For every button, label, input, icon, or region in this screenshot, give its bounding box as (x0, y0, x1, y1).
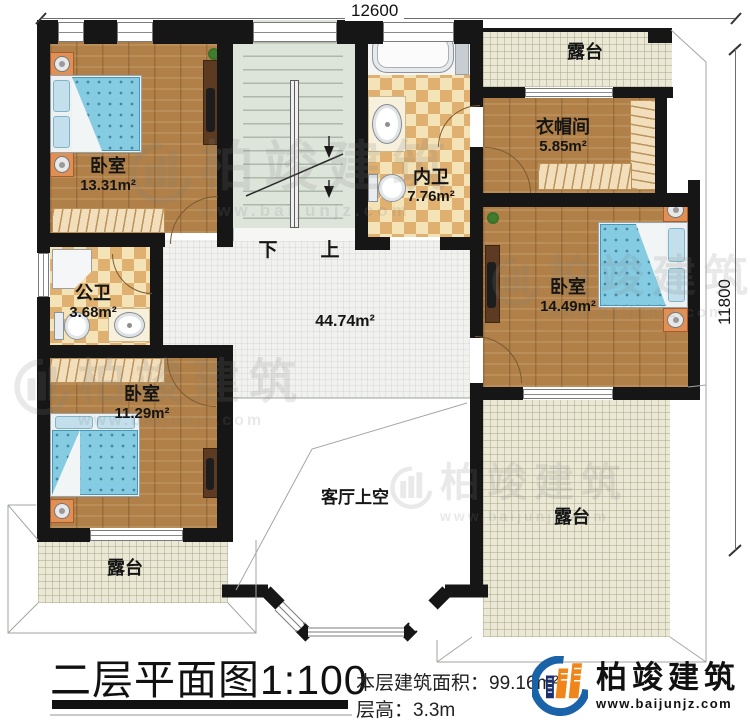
room-label-bedroom-top-left: 卧室 13.31m² (58, 156, 158, 195)
wardrobe (538, 163, 632, 190)
lamp-icon (54, 56, 70, 72)
nightstand (50, 52, 74, 76)
nightstand (50, 499, 74, 523)
wall (470, 250, 483, 338)
room-area: 44.74m² (315, 313, 375, 330)
hall-area-label: 44.74m² (300, 313, 390, 332)
room-area: 5.85m² (517, 138, 609, 156)
dimension-line-right (735, 49, 736, 550)
wardrobe (52, 208, 165, 233)
floor-area-label: 本层建筑面积： (356, 673, 489, 694)
wall (483, 193, 700, 207)
wall (217, 20, 233, 247)
dimension-right-value: 11800 (715, 265, 735, 339)
room-name: 卧室 (94, 384, 190, 405)
room-label-terrace-bottom-left: 露台 (100, 558, 150, 579)
toilet-tank-icon (368, 174, 378, 202)
bed-sheet-fold (636, 224, 666, 306)
room-label-bedroom-bottom-left: 卧室 11.29m² (94, 384, 190, 423)
wall (440, 237, 482, 250)
wall (613, 387, 688, 400)
pillow (53, 80, 70, 112)
stair-down-label: 下 (256, 240, 280, 262)
wall (355, 20, 368, 250)
company-logo-icon (532, 656, 588, 716)
monitor-icon (206, 458, 214, 490)
wall (37, 528, 90, 542)
window (90, 530, 183, 541)
wall (470, 400, 483, 592)
room-label-living-void: 客厅上空 (312, 488, 398, 508)
room-label-bedroom-right: 卧室 14.49m² (520, 277, 616, 316)
plant-icon (487, 212, 499, 224)
wall (470, 383, 483, 400)
wall (37, 20, 50, 253)
window (117, 22, 153, 42)
stair-up-label: 上 (318, 240, 342, 262)
roof-surround-terrace-br-right (670, 385, 706, 662)
wall (655, 88, 667, 198)
pillow (55, 416, 93, 429)
bed-sheet-fold (72, 77, 102, 151)
wall (37, 297, 50, 540)
room-label-bath-inner: 内卫 7.76m² (388, 167, 474, 206)
window (38, 253, 49, 297)
title-underline (52, 700, 348, 709)
room-name: 内卫 (388, 167, 474, 188)
plan-title: 二层平面图1:100 (50, 646, 368, 706)
room-area: 14.49m² (520, 298, 616, 316)
room-name: 卧室 (520, 277, 616, 298)
wardrobe (50, 358, 165, 383)
wall (153, 20, 253, 44)
dimension-top-value: 12600 (345, 1, 404, 21)
lamp-icon (54, 503, 70, 519)
wall (688, 180, 700, 400)
room-name: 卧室 (58, 156, 158, 177)
room-label-terrace-top: 露台 (560, 42, 610, 63)
title-underline-thin (50, 714, 352, 716)
floor-area-line: 本层建筑面积：99.16m² (356, 668, 559, 695)
wall (358, 237, 390, 250)
lamp-icon (667, 312, 684, 328)
window (253, 22, 337, 42)
sliding-door-window (523, 389, 613, 399)
company-website: www.baijunjz.com (596, 696, 740, 711)
wall (483, 87, 525, 98)
wall (183, 528, 233, 542)
wall (37, 233, 165, 247)
room-area: 13.31m² (58, 177, 158, 195)
wall (217, 345, 233, 530)
pillow (668, 268, 685, 302)
wall (37, 345, 217, 358)
pillow (668, 228, 685, 262)
room-area: 3.68m² (60, 304, 126, 322)
wall (613, 87, 673, 98)
sink-icon (372, 104, 402, 144)
floor-plan-page: 12600 11800 柏竣建筑 www.baijunjz.com 柏竣建筑 w… (0, 0, 750, 728)
room-label-bath-public: 公卫 3.68m² (60, 283, 126, 322)
floor-height-label: 层高： (356, 700, 413, 721)
wall (470, 20, 483, 107)
room-area: 11.29m² (94, 405, 190, 423)
wardrobe (630, 100, 657, 190)
terrace-parapet (483, 28, 672, 32)
room-label-cloakroom: 衣帽间 5.85m² (517, 117, 609, 156)
nightstand (663, 308, 688, 332)
company-name: 柏竣建筑 (596, 662, 740, 693)
room-area: 7.76m² (388, 188, 474, 206)
wall (84, 20, 117, 44)
pillow (53, 116, 70, 148)
room-label-terrace-bottom-right: 露台 (547, 507, 597, 528)
room-name: 衣帽间 (517, 117, 609, 138)
window (58, 22, 84, 42)
floor-height-value: 3.3m (413, 700, 455, 721)
room-name: 公卫 (60, 283, 126, 304)
wall (648, 28, 672, 43)
window (383, 22, 454, 42)
window (525, 88, 613, 97)
monitor-icon (206, 88, 215, 132)
bed-sheet-fold (52, 430, 80, 495)
floor-height-line: 层高：3.3m (356, 695, 455, 722)
monitor-icon (487, 262, 496, 308)
stair-handrail (290, 80, 299, 228)
company-logo: 柏竣建筑 www.baijunjz.com (532, 656, 740, 716)
